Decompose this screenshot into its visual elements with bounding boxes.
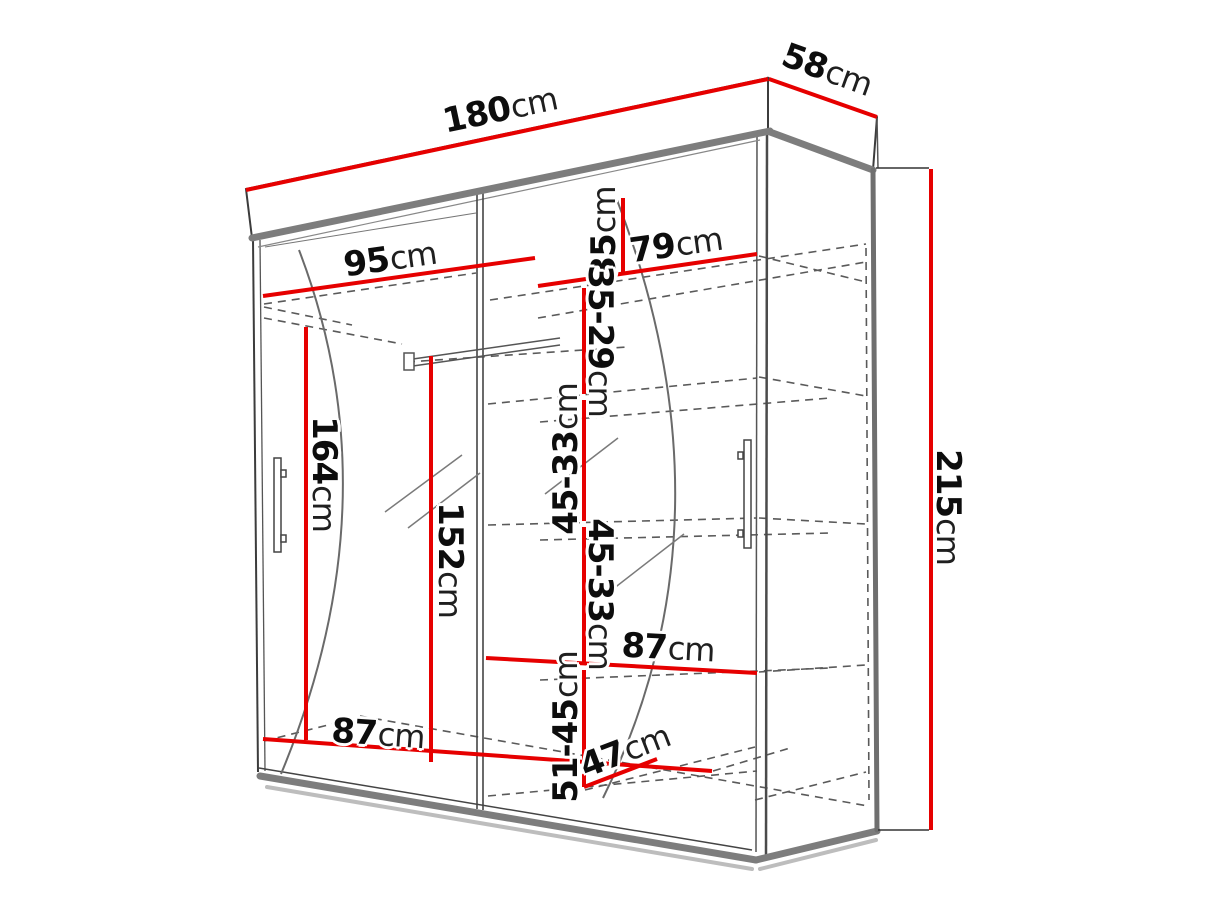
dimension-unit: cm: [387, 234, 439, 278]
dimension-value: 152: [430, 502, 470, 570]
dimension-label-164: 164cm: [304, 416, 344, 532]
dimension-label-45-33-upper: 45-33cm: [546, 383, 586, 535]
dimension-unit: cm: [585, 186, 623, 233]
door-details: [274, 200, 751, 798]
dimension-label-87-left: 87cm: [330, 711, 426, 757]
dimension-value: 215: [928, 449, 968, 517]
dimension-unit: cm: [929, 518, 967, 565]
dimension-value: 95: [341, 239, 391, 285]
dimension-label-35-29: 35-29cm: [580, 265, 620, 417]
dimension-label-45-33-lower: 45-33cm: [580, 518, 620, 670]
wardrobe-dimension-diagram: 180cm 58cm 215cm 95cm 79cm 35cm 35-29cm …: [0, 0, 1219, 914]
hanging-rail: [404, 338, 560, 370]
dimension-label-152: 152cm: [430, 502, 470, 618]
dimension-unit: cm: [547, 651, 585, 698]
dimension-unit: cm: [581, 370, 619, 417]
extension-lines: [876, 168, 929, 830]
dimension-label-51-45: 51-45cm: [546, 651, 586, 803]
dimension-unit: cm: [547, 383, 585, 430]
dimension-value: 164: [304, 416, 344, 484]
dimension-unit: cm: [667, 629, 716, 669]
dimension-unit: cm: [431, 571, 469, 618]
dimension-value: 45-33: [580, 518, 620, 622]
dimension-value: 87: [330, 711, 378, 754]
dimension-unit: cm: [507, 79, 561, 126]
right-door-handle: [738, 440, 751, 548]
dimension-unit: cm: [581, 623, 619, 670]
dimension-value: 79: [627, 225, 677, 271]
dimension-unit: cm: [673, 220, 725, 264]
dimension-value: 87: [620, 626, 667, 668]
dimension-label-87-right: 87cm: [620, 626, 715, 671]
left-door-handle: [274, 458, 286, 552]
dimension-label-height-215: 215cm: [928, 449, 968, 565]
dimension-unit: cm: [305, 485, 343, 532]
dimension-value: 35-29: [580, 265, 620, 369]
dimension-unit: cm: [376, 715, 425, 756]
